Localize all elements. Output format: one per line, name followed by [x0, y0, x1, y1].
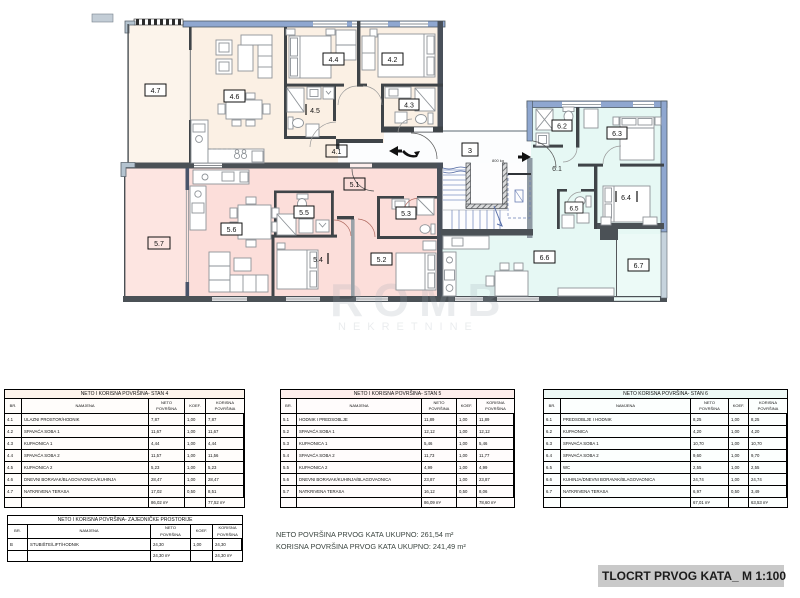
svg-text:6.2: 6.2 [557, 124, 567, 131]
svg-text:4.2: 4.2 [388, 57, 398, 64]
svg-text:4.4: 4.4 [329, 57, 339, 64]
svg-text:3: 3 [468, 146, 472, 155]
svg-text:6.1: 6.1 [552, 166, 562, 173]
svg-text:5.3: 5.3 [401, 211, 411, 218]
svg-text:4.1: 4.1 [332, 149, 342, 156]
svg-text:4.3: 4.3 [404, 103, 414, 110]
svg-text:5.2: 5.2 [377, 257, 387, 264]
svg-text:5.4: 5.4 [313, 257, 323, 264]
svg-text:5.1: 5.1 [350, 182, 360, 189]
svg-text:800 kg: 800 kg [492, 158, 504, 163]
svg-text:4.6: 4.6 [230, 94, 240, 101]
svg-text:6.6: 6.6 [540, 255, 550, 262]
svg-text:5.7: 5.7 [154, 241, 164, 248]
svg-text:4.7: 4.7 [151, 88, 161, 95]
svg-text:5.5: 5.5 [299, 210, 309, 217]
svg-text:6.4: 6.4 [621, 195, 631, 202]
svg-text:NEKRETNINE: NEKRETNINE [338, 321, 479, 333]
svg-text:5.6: 5.6 [227, 227, 237, 234]
svg-text:6.7: 6.7 [634, 263, 644, 270]
svg-text:6.3: 6.3 [612, 131, 622, 138]
svg-text:6.5: 6.5 [569, 206, 578, 213]
svg-text:4.5: 4.5 [310, 108, 320, 115]
